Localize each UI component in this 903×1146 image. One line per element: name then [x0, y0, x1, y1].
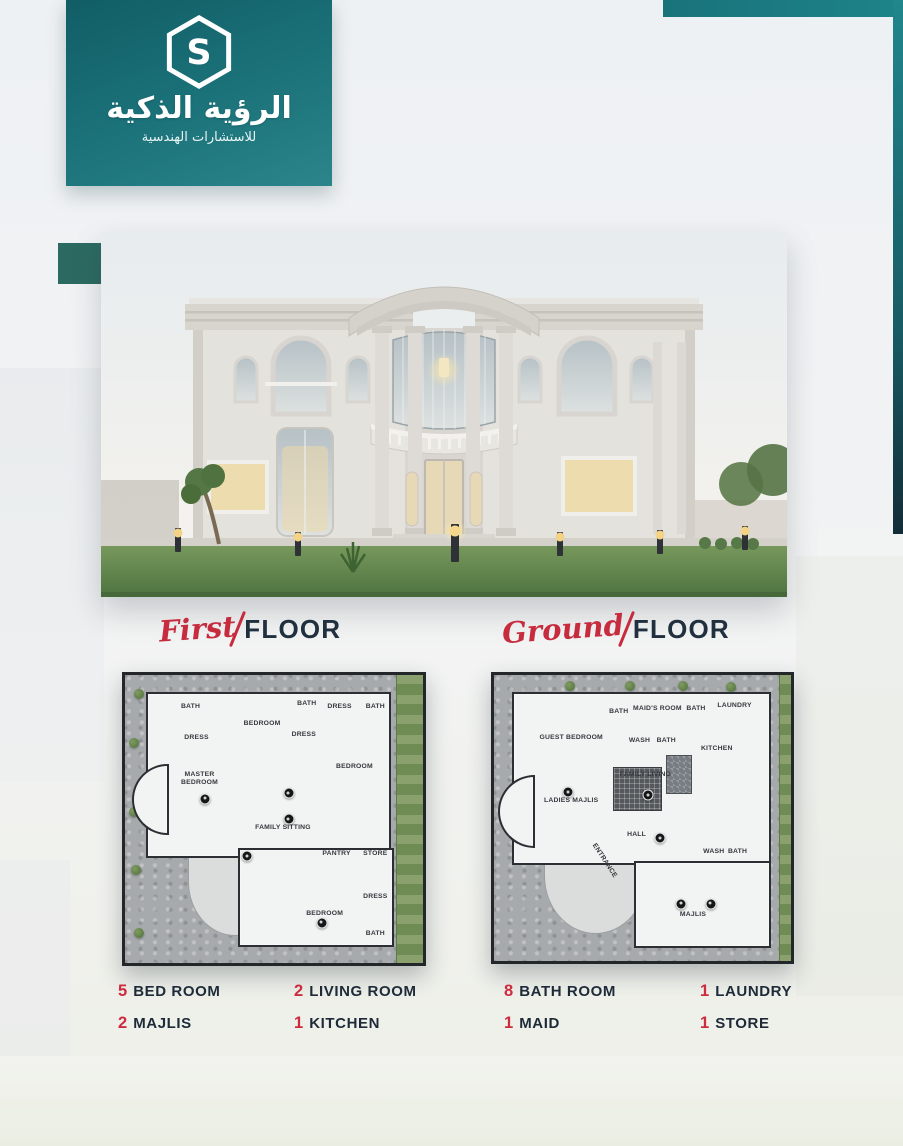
watermark-left-lower	[0, 860, 70, 1060]
brand-name-arabic: الرؤية الذكية	[106, 93, 292, 125]
room-label: MASTER BEDROOM	[177, 771, 223, 787]
villa-photo	[101, 232, 787, 597]
stat-count: 1	[700, 1014, 709, 1033]
stat-label: MAID	[519, 1015, 560, 1032]
room-label: LADIES MAJLIS	[544, 797, 598, 805]
room-label: WASH	[703, 848, 724, 856]
ground-floor-title-rest: FLOOR	[633, 614, 730, 645]
stat-item: 2 LIVING ROOM	[294, 982, 504, 1001]
brand-monogram: S	[186, 33, 211, 73]
room-label: DRESS	[184, 734, 208, 742]
stat-item: 1 STORE	[700, 1014, 794, 1033]
stat-label: LIVING ROOM	[309, 983, 416, 1000]
room-label: KITCHEN	[701, 745, 733, 753]
stat-label: BED ROOM	[133, 983, 220, 1000]
stat-count: 5	[118, 982, 127, 1001]
first-floor-plan: BATHDRESSBEDROOMBATHDRESSDRESSBATHBEDROO…	[122, 672, 426, 966]
plan-marker	[200, 793, 211, 804]
room-label: MAID'S ROOM	[633, 705, 682, 713]
room-label: WASH	[629, 737, 650, 745]
room-label: BATH	[609, 708, 628, 716]
brand-tagline-arabic: للاستشارات الهندسية	[142, 130, 256, 145]
room-label: GUEST BEDROOM	[540, 734, 603, 742]
plan-bush	[678, 681, 688, 691]
stat-item: 1 LAUNDRY	[700, 982, 794, 1001]
first-floor-title-rest: FLOOR	[244, 614, 341, 645]
plan-marker	[242, 851, 253, 862]
stat-label: BATH ROOM	[519, 983, 616, 1000]
room-label: FAMILY SITTING	[255, 824, 311, 832]
room-label: LAUNDRY	[717, 702, 751, 710]
stat-item: 1 KITCHEN	[294, 1014, 504, 1033]
room-label: DRESS	[292, 731, 316, 739]
plan-marker	[316, 917, 327, 928]
room-label: BATH	[686, 705, 705, 713]
watermark-right	[796, 556, 903, 996]
stat-count: 8	[504, 982, 513, 1001]
room-label: STORE	[363, 849, 387, 857]
brochure-poster: S الرؤية الذكية للاستشارات الهندسية	[0, 0, 903, 1146]
right-accent-strip	[893, 0, 903, 534]
stat-item: 2 MAJLIS	[118, 1014, 294, 1033]
plan-marker	[655, 833, 666, 844]
room-label: BATH	[728, 848, 747, 856]
ground-floor-title: Ground FLOOR	[496, 608, 736, 650]
room-label: FAMILY LIVING	[620, 771, 671, 779]
room-label: BATH	[657, 737, 676, 745]
plan-bush	[131, 865, 141, 875]
room-label: PANTRY	[322, 849, 350, 857]
room-label: HALL	[627, 831, 646, 839]
plan-garden-strip	[779, 675, 791, 961]
room-label: MAJLIS	[680, 911, 706, 919]
plan-garden-strip	[396, 675, 423, 963]
plan-marker	[563, 787, 574, 798]
room-label: BATH	[366, 703, 385, 711]
villa-illustration	[101, 232, 787, 597]
room-label: BEDROOM	[306, 910, 343, 918]
stat-count: 1	[700, 982, 709, 1001]
stat-count: 1	[294, 1014, 303, 1033]
stat-item: 1 MAID	[504, 1014, 700, 1033]
room-label: BEDROOM	[336, 763, 373, 771]
watermark-left	[0, 368, 104, 782]
room-label: DRESS	[363, 893, 387, 901]
plan-bush	[625, 681, 635, 691]
brand-panel: S الرؤية الذكية للاستشارات الهندسية	[66, 0, 332, 186]
stat-count: 2	[294, 982, 303, 1001]
summary-stats: 5 BED ROOM 2 LIVING ROOM 8 BATH ROOM 1 L…	[118, 982, 794, 1033]
plan-bush	[726, 682, 736, 692]
stat-item: 8 BATH ROOM	[504, 982, 700, 1001]
hexagon-logo-icon: S	[161, 12, 237, 92]
room-label: BATH	[366, 930, 385, 938]
stat-label: MAJLIS	[133, 1015, 192, 1032]
plan-footprint-wing	[634, 861, 772, 948]
stat-count: 1	[504, 1014, 513, 1033]
ground-floor-title-script: Ground	[501, 608, 625, 650]
stat-item: 5 BED ROOM	[118, 982, 294, 1001]
room-label: BEDROOM	[244, 720, 281, 728]
stat-count: 2	[118, 1014, 127, 1033]
room-label: BATH	[181, 703, 200, 711]
plan-marker	[283, 788, 294, 799]
plan-bush	[565, 681, 575, 691]
stat-label: LAUNDRY	[715, 983, 792, 1000]
ground-floor-plan: GUEST BEDROOMBATHMAID'S ROOMBATHLAUNDRYW…	[491, 672, 794, 964]
stat-label: STORE	[715, 1015, 769, 1032]
watermark-bottom-band	[0, 1056, 903, 1146]
stat-label: KITCHEN	[309, 1015, 380, 1032]
plan-marker	[283, 814, 294, 825]
room-label: DRESS	[327, 703, 351, 711]
top-accent-bar	[663, 0, 903, 17]
plan-marker	[676, 898, 687, 909]
plan-marker	[643, 790, 654, 801]
room-label: BATH	[297, 700, 316, 708]
first-floor-title-script: First	[158, 609, 237, 648]
plan-marker	[705, 898, 716, 909]
first-floor-title: First FLOOR	[130, 608, 370, 650]
